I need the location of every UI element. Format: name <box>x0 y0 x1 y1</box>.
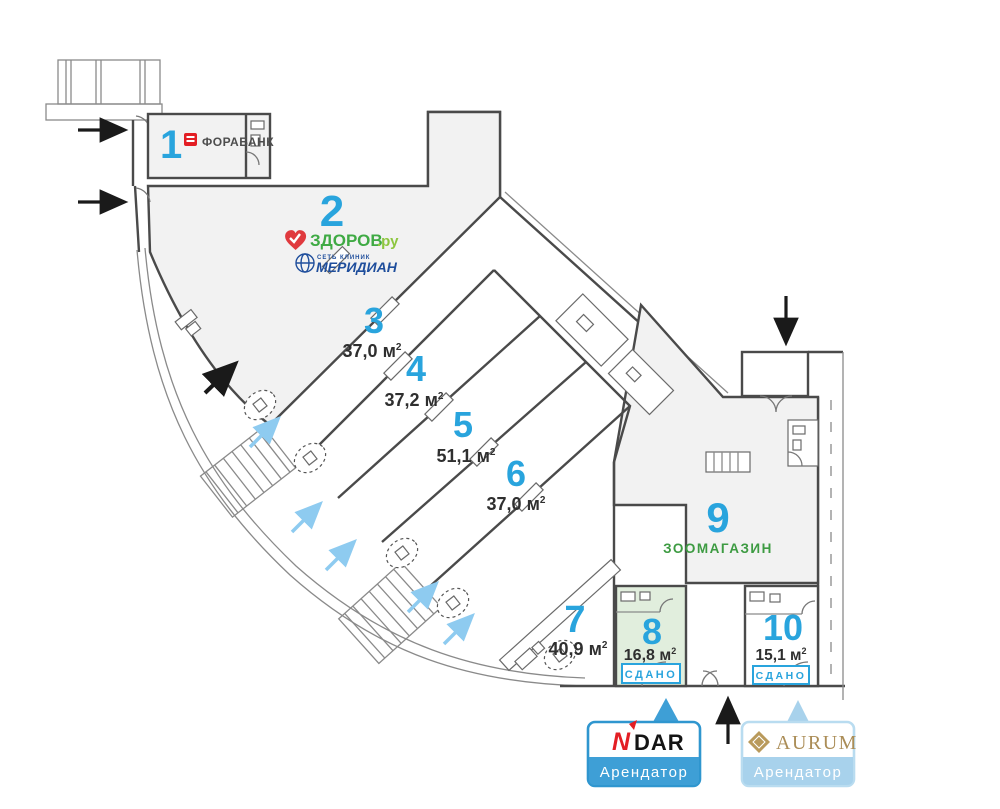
aurum-text: AURUM <box>776 732 858 754</box>
zdorov-text: ЗДОРОВ <box>310 231 383 250</box>
unit-4-number: 4 <box>406 348 426 389</box>
floor-plan-svg: 1 ФОРАБАНК 2 ЗДОРОВ .ру СЕТЬ КЛИНИК МЕРИ… <box>0 0 1000 809</box>
unit-9-number: 9 <box>706 494 729 541</box>
unit-10-status-badge: СДАНО <box>753 666 809 684</box>
svg-text:СДАНО: СДАНО <box>625 669 678 681</box>
tenant-card-ndar: N DAR Арендатор <box>588 698 700 786</box>
unit-7-area: 40,9 м2 <box>549 639 608 659</box>
zdorov-suffix: .ру <box>377 233 399 250</box>
pointer-up-icon <box>786 700 810 724</box>
meridian-text: МЕРИДИАН <box>316 259 398 275</box>
unit-6-area: 37,0 м2 <box>487 494 546 514</box>
unit-5-number: 5 <box>453 404 473 445</box>
unit-3-number: 3 <box>364 300 384 341</box>
forabank-icon <box>184 133 197 146</box>
unit-2-number: 2 <box>320 187 344 236</box>
unit-5-area: 51,1 м2 <box>437 446 496 466</box>
unit-9-tenant: ЗООМАГАЗИН <box>663 541 773 556</box>
unit-8-status-badge: СДАНО <box>622 664 680 683</box>
ndar-tenant-label: Арендатор <box>600 764 689 781</box>
svg-text:СДАНО: СДАНО <box>756 670 807 682</box>
unit-7-number: 7 <box>564 599 585 641</box>
aurum-tenant-label: Арендатор <box>754 764 843 781</box>
corridor-doors <box>702 671 718 686</box>
forabank-text: ФОРАБАНК <box>202 135 274 149</box>
unit-10-area: 15,1 м2 <box>756 646 807 664</box>
unit-8-number: 8 <box>642 611 662 652</box>
pointer-up-icon <box>653 698 679 722</box>
ndar-logo-dar: DAR <box>634 730 685 755</box>
floor-plan-page: 1 ФОРАБАНК 2 ЗДОРОВ .ру СЕТЬ КЛИНИК МЕРИ… <box>0 0 1000 809</box>
tenant-card-aurum: AURUM Арендатор <box>742 700 858 786</box>
unit-6-number: 6 <box>506 453 526 494</box>
unit-3-area: 37,0 м2 <box>343 341 402 361</box>
ndar-logo-n: N <box>612 728 631 756</box>
stairs-icon <box>706 452 750 472</box>
unit-4-area: 37,2 м2 <box>385 390 444 410</box>
unit-10-number: 10 <box>763 607 803 648</box>
unit-8-area: 16,8 м2 <box>624 646 676 664</box>
unit-1-number: 1 <box>160 123 182 167</box>
